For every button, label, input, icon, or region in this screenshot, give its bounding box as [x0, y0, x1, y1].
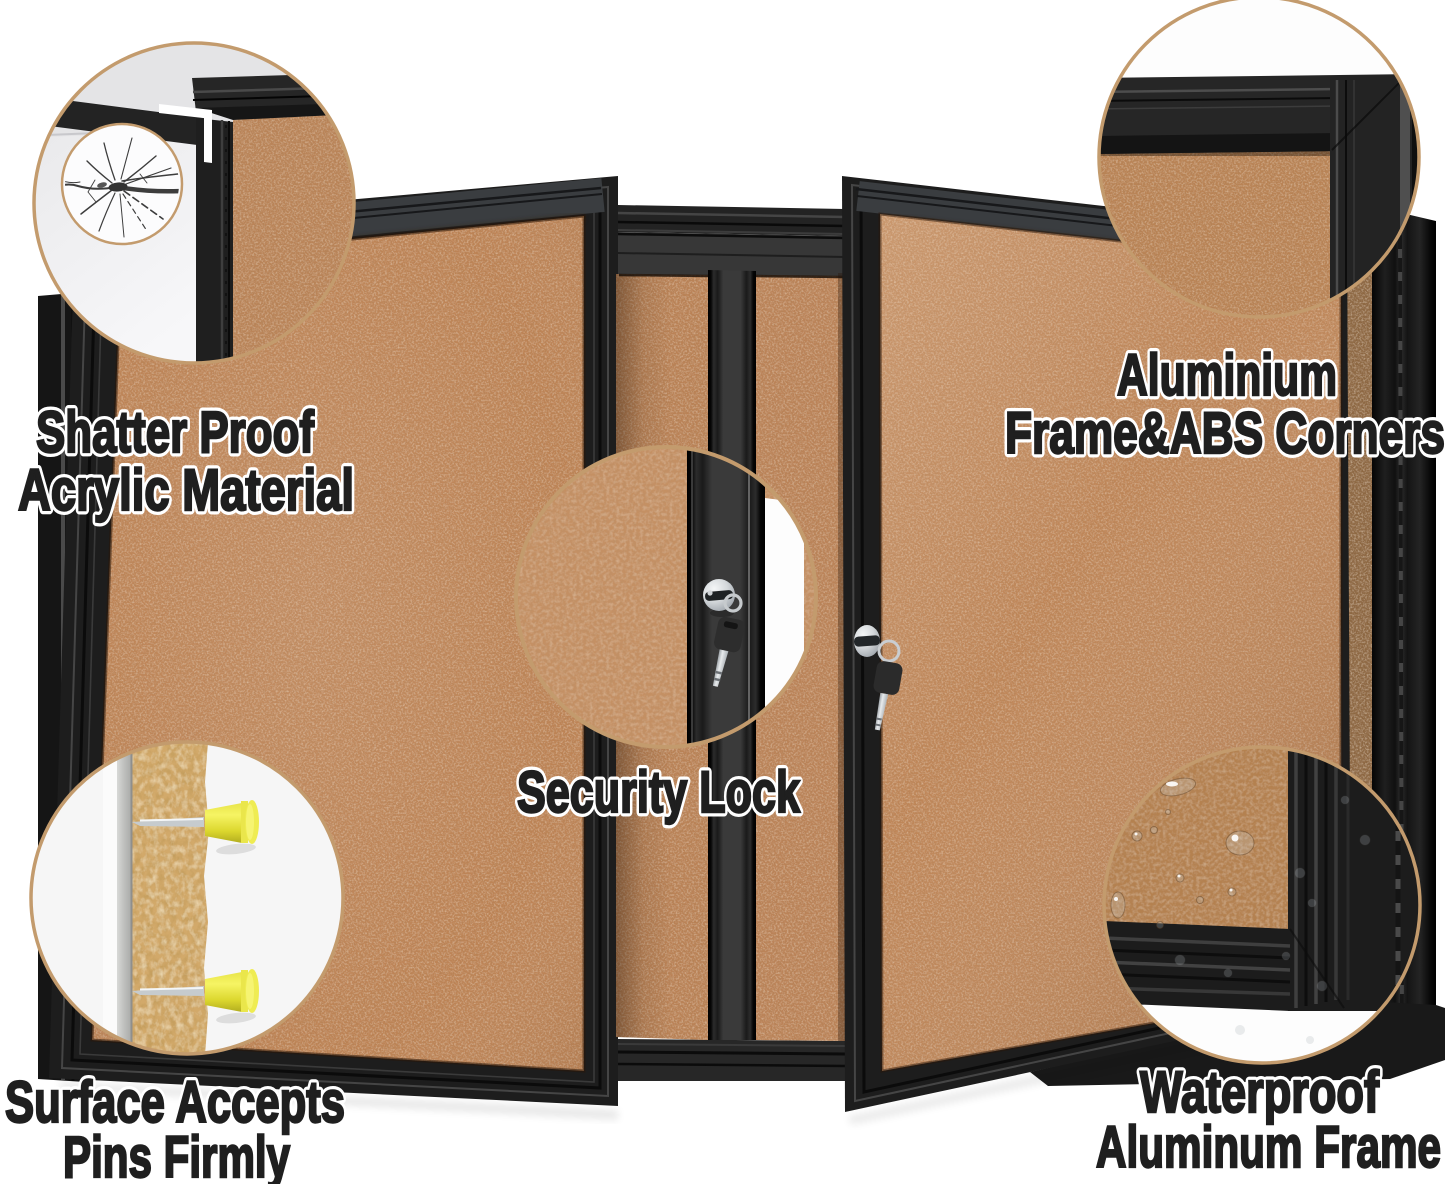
- svg-text:Pins Firmly: Pins Firmly: [63, 1125, 290, 1184]
- svg-text:Security Lock: Security Lock: [517, 760, 801, 825]
- svg-text:Acrylic Material: Acrylic Material: [18, 458, 354, 523]
- svg-text:Shatter Proof: Shatter Proof: [36, 400, 315, 465]
- svg-text:Frame&ABS Corners: Frame&ABS Corners: [1005, 401, 1445, 466]
- svg-text:Aluminium: Aluminium: [1117, 343, 1337, 408]
- svg-text:Aluminum Frame: Aluminum Frame: [1096, 1115, 1441, 1180]
